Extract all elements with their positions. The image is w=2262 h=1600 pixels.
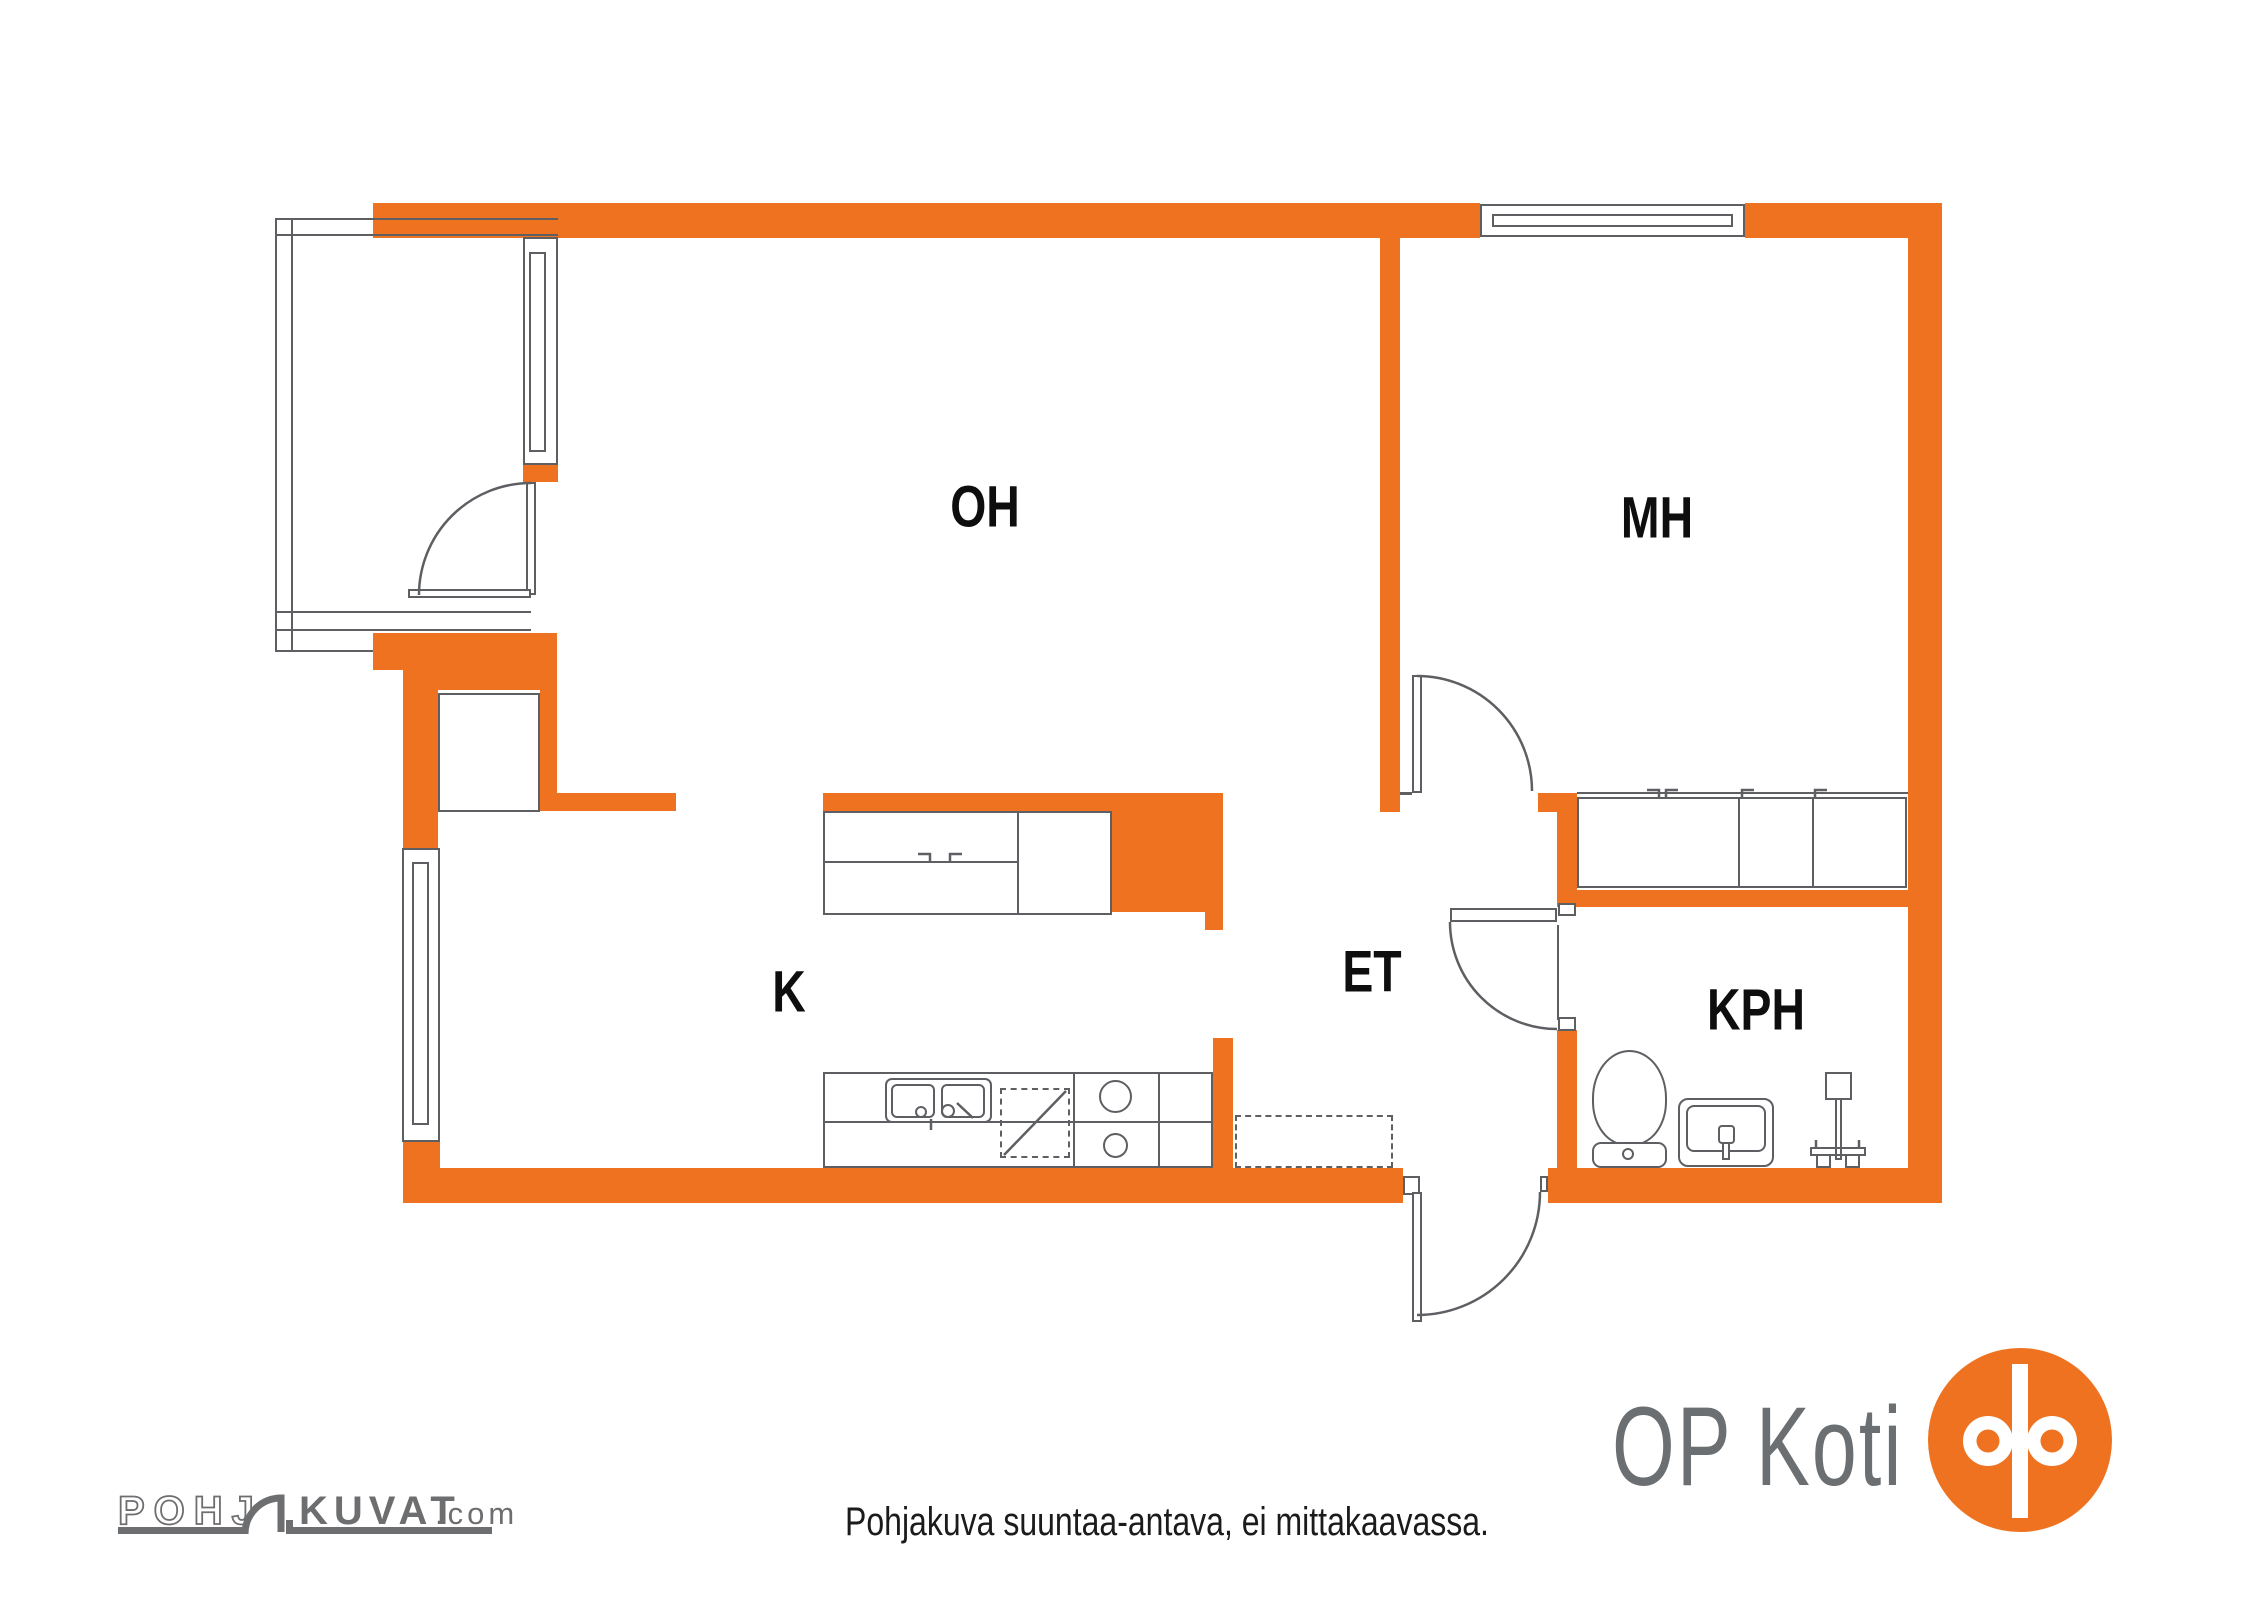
balcony-line (275, 218, 277, 652)
bedroom-door-arc (1417, 676, 1532, 791)
bathroom-door-leaf (1450, 908, 1557, 922)
nook-top-band (403, 633, 557, 690)
bathroom-door-frame (1558, 903, 1576, 916)
balcony-line (275, 629, 531, 631)
wall-kitchen-hall (1213, 1038, 1233, 1168)
room-label-kitchen: K (772, 959, 806, 1026)
peninsula-block (1112, 793, 1223, 912)
peninsula-step (1205, 912, 1223, 930)
nook-right-strip (540, 690, 557, 793)
kitchen-window-glass (412, 862, 429, 1125)
room-label-bedroom: MH (1621, 485, 1693, 552)
front-door-frame (1540, 1176, 1548, 1192)
wall-right (1908, 238, 1942, 1168)
watermark-pohj: POHJ (118, 1489, 263, 1533)
stove-divider (1073, 1072, 1075, 1168)
wardrobe-divider (1738, 797, 1740, 888)
watermark-baseline (118, 1527, 245, 1534)
front-door-arc (1417, 1192, 1540, 1315)
wall-oh-mh (1380, 238, 1400, 812)
cabinet-divider (1017, 811, 1019, 915)
stove-burner-small (1103, 1133, 1128, 1158)
shower-foot (1845, 1154, 1860, 1168)
toilet-bowl (1592, 1050, 1667, 1146)
wall-mh-door-block (1538, 793, 1577, 812)
balcony-door-leaf (526, 482, 536, 595)
wardrobe-top-line (1577, 792, 1908, 794)
dishwasher (1000, 1088, 1070, 1158)
bathroom-door-arc (1450, 922, 1557, 1029)
room-label-bathroom: KPH (1707, 977, 1805, 1044)
wall-left-stub (403, 1142, 440, 1168)
balcony-line (291, 218, 293, 652)
balcony-line (275, 234, 558, 236)
balcony-door-arc (419, 483, 531, 595)
wall-mh-kph (1557, 890, 1908, 907)
wall-bottom-left (403, 1168, 1403, 1203)
wall-top-left (373, 203, 1480, 238)
toilet-flush-button (1622, 1148, 1634, 1160)
room-label-hall: ET (1342, 939, 1401, 1006)
disclaimer-text: Pohjakuva suuntaa-antava, ei mittakaavas… (845, 1500, 1489, 1545)
faucet-knob (941, 1104, 955, 1118)
sink-bowl-left (891, 1084, 935, 1118)
wall-et-kph-lower (1557, 1030, 1577, 1168)
washbasin-faucet-stem (1722, 1142, 1730, 1160)
hall-appliance-reservation (1235, 1115, 1393, 1168)
bedroom-door-leaf (1412, 675, 1422, 793)
stove-burner-large (1099, 1080, 1132, 1113)
watermark-tld: .com (435, 1496, 518, 1531)
kitchen-cabinet (823, 811, 1112, 915)
shower-head (1825, 1072, 1852, 1100)
balcony-door-open-leaf (408, 589, 531, 598)
wall-bottom-right (1548, 1168, 1942, 1203)
op-logo-icon (1928, 1348, 2112, 1532)
stove-divider (1158, 1072, 1160, 1168)
nook-step (373, 633, 403, 670)
front-door-leaf (1412, 1192, 1422, 1322)
shower-foot (1816, 1154, 1831, 1168)
balcony-line (275, 650, 373, 652)
balcony-line (275, 611, 531, 613)
closet-nook (438, 693, 540, 812)
wall-ohk-left (540, 793, 676, 811)
balcony-pier (523, 465, 558, 482)
floor-plan: OH MH K ET KPH (0, 0, 2262, 1600)
bathroom-door-frame (1558, 1017, 1576, 1031)
faucet-knob (915, 1106, 927, 1118)
room-label-living: OH (950, 474, 1020, 541)
wardrobe-divider (1812, 797, 1814, 888)
balcony-line (275, 218, 558, 220)
balcony-window-glass (529, 252, 546, 452)
wall-top-right (1745, 203, 1942, 238)
bedroom-window-glass (1492, 214, 1733, 227)
op-koti-wordmark: OP Koti (1612, 1382, 1904, 1511)
bathroom-door-closed-line (1557, 925, 1559, 1020)
nook-left-strip (403, 690, 438, 848)
cabinet-shelf-line (823, 861, 1017, 863)
wall-ohk-band (823, 793, 1112, 811)
wardrobes (1577, 797, 1907, 888)
pohjakuvat-logo: POHJ KUVAT .com (105, 1468, 525, 1548)
bedroom-door-threshold (1400, 792, 1412, 795)
